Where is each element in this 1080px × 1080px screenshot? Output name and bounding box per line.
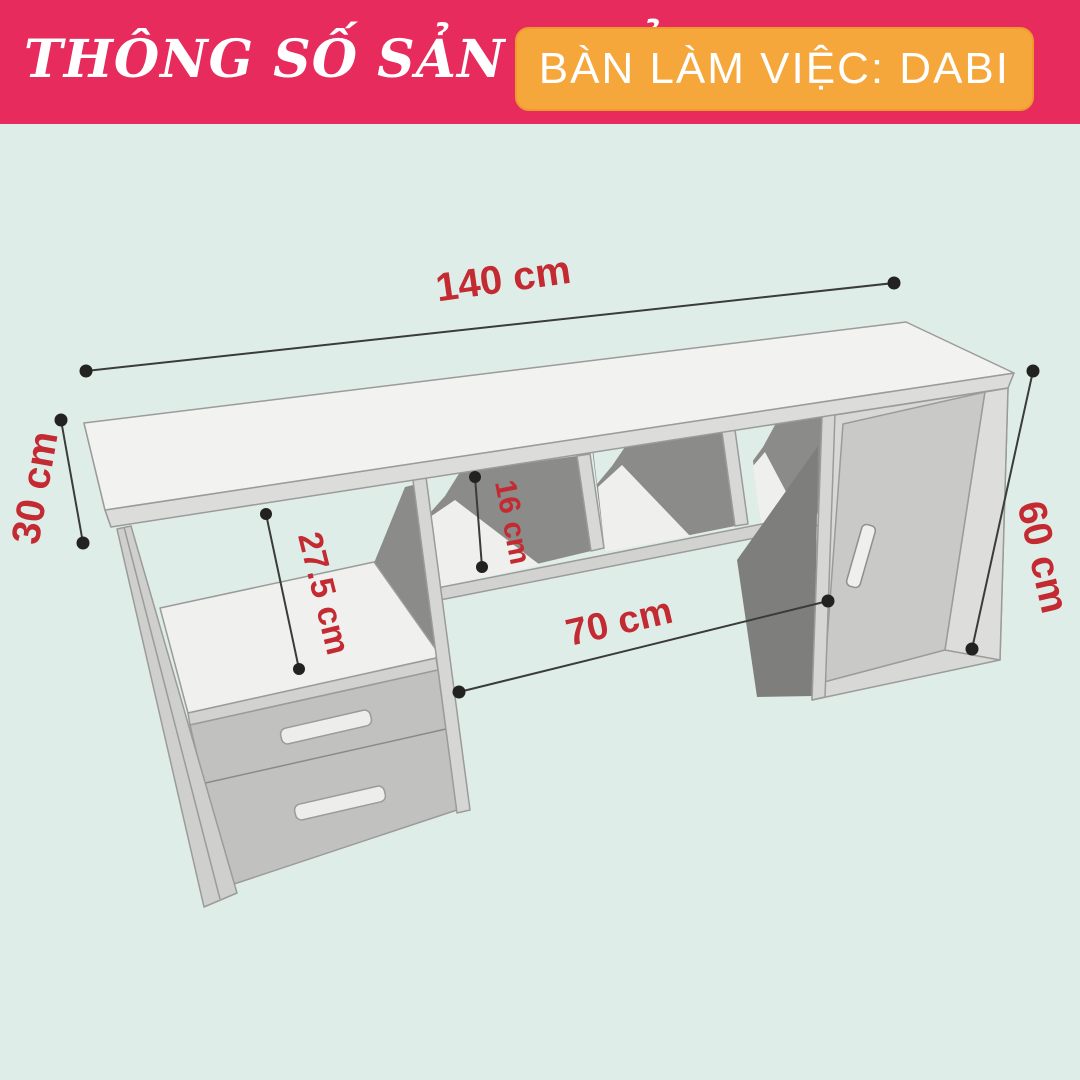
dimension-dot (888, 277, 901, 290)
dimension-dot (77, 537, 90, 550)
dimension-dot (966, 643, 979, 656)
product-diagram: 140 cm 30 cm 60 cm 27.5 cm 16 cm 70 cm (0, 0, 1080, 1080)
dimension-label-30cm: 30 cm (4, 428, 67, 547)
dimension-dot (293, 663, 305, 675)
diagram-stage: 140 cm 30 cm 60 cm 27.5 cm 16 cm 70 cm (0, 0, 1080, 1080)
dimension-dot (1027, 365, 1040, 378)
dimension-dot (822, 595, 835, 608)
dimension-dot (80, 365, 93, 378)
header-banner: THÔNG SỐ SẢN PHẨM BÀN LÀM VIỆC: DABI (0, 0, 1080, 124)
dimension-label-140cm: 140 cm (433, 248, 573, 310)
dimension-label-70cm: 70 cm (562, 590, 676, 655)
dimension-label-60cm: 60 cm (1008, 497, 1076, 617)
dimension-dot (260, 508, 272, 520)
dimension-dot (476, 561, 488, 573)
dimension-dot (55, 414, 68, 427)
dimension-dot (469, 471, 481, 483)
dimension-dot (453, 686, 466, 699)
dimension-depth: 30 cm (4, 414, 90, 550)
product-badge: BÀN LÀM VIỆC: DABI (515, 27, 1034, 111)
